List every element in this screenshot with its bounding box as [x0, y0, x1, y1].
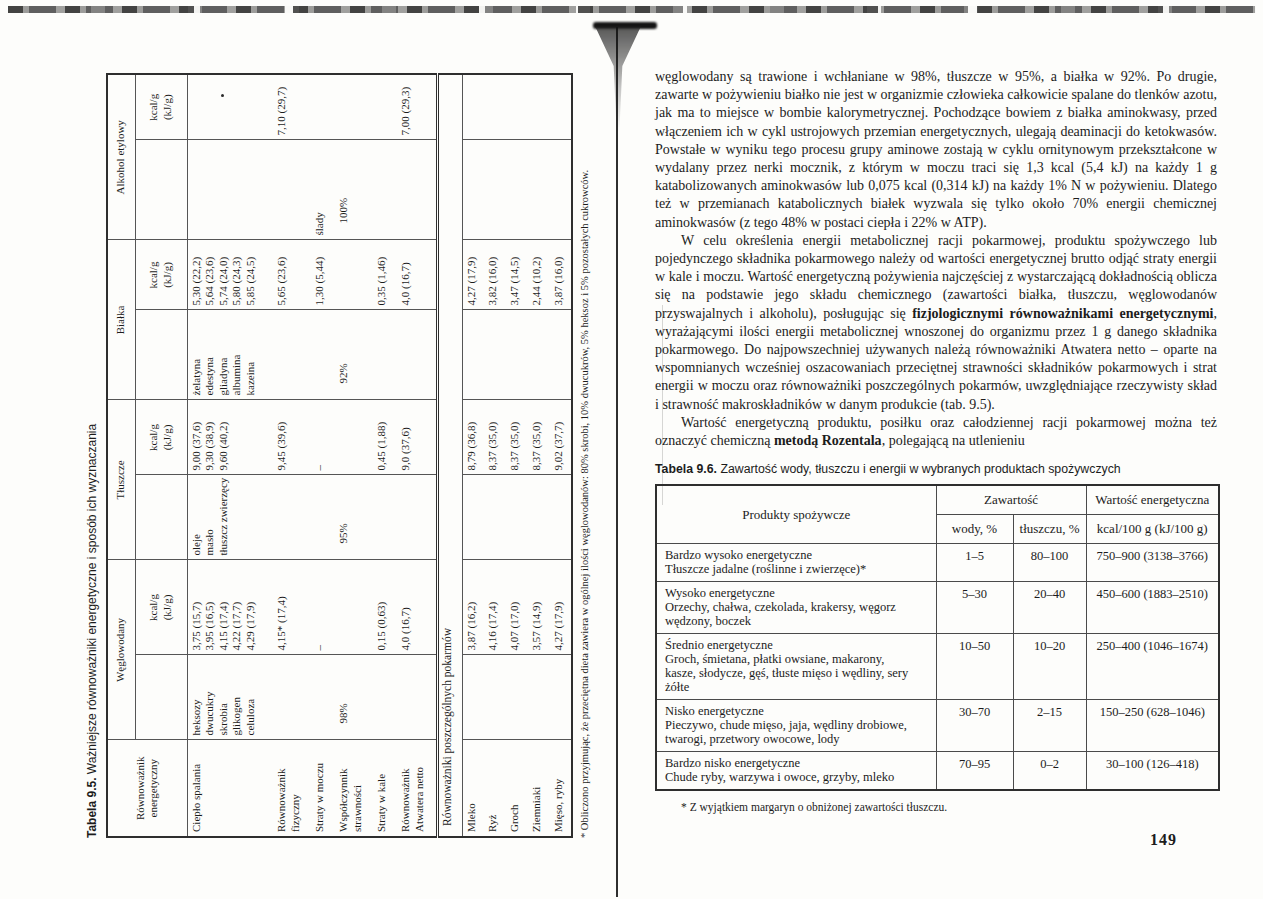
row-label: Straty w moczu — [311, 740, 335, 837]
table-cell: heksozy dwucukry skrobia glikogen celulo… — [187, 655, 273, 740]
table-cell — [484, 475, 506, 560]
fat-cell: 0–2 — [1013, 752, 1086, 791]
table-cell — [311, 655, 335, 740]
table-cell: 9,45 (39,6) — [273, 400, 311, 475]
table-cell — [397, 310, 437, 400]
table-row: Średnio energetyczne Groch, śmietana, pł… — [656, 634, 1219, 700]
table-cell: 8,37 (35,0) — [484, 400, 506, 475]
table-cell — [311, 310, 335, 400]
table-9-5-caption: Tabela 9.5. Ważniejsze równoważniki ener… — [85, 60, 100, 838]
table-cell — [550, 310, 572, 400]
table-cell: 2,44 (10,2) — [528, 240, 550, 310]
table-cell — [528, 74, 550, 140]
table-cell — [373, 475, 397, 560]
table-cell — [273, 475, 311, 560]
col-subheader-kcal: kcal/g (kJ/g) — [135, 240, 187, 310]
table-cell — [528, 475, 550, 560]
col-subheader-kcal: kcal/g (kJ/g) — [135, 560, 187, 655]
row-label: Ziemniaki — [528, 740, 550, 837]
rotated-table-block: Tabela 9.5. Ważniejsze równoważniki ener… — [85, 60, 585, 838]
product-cell: Bardzo wysoko energetyczne Tłuszcze jada… — [656, 544, 936, 582]
table-row: Mleko3,87 (16,2)8,79 (36,8)4,27 (17,9) — [462, 74, 484, 837]
table-row: Groch4,07 (17,0)8,37 (35,0)3,47 (14,5) — [506, 74, 528, 837]
table-row: Bardzo nisko energetyczne Chude ryby, wa… — [656, 752, 1219, 791]
table-9-5-footnote: * Obliczono przyjmując, że przeciętna di… — [578, 60, 591, 838]
table-cell — [187, 140, 273, 240]
table-cell — [550, 655, 572, 740]
table-cell — [335, 560, 373, 655]
table-cell: 3,87 (16,0) — [550, 240, 572, 310]
table-cell: 4,15* (17,4) — [273, 560, 311, 655]
table-cell — [187, 74, 273, 140]
table-cell: 9,00 (37,6) 9,30 (38,9) 9,60 (40,2) — [187, 400, 273, 475]
water-cell: 1–5 — [936, 544, 1013, 582]
table-row: Ryż4,16 (17,4)8,37 (35,0)3,82 (16,0) — [484, 74, 506, 837]
table-cell — [462, 655, 484, 740]
table-cell: 0,45 (1,88) — [373, 400, 397, 475]
table-cell: oleje masło tłuszcz zwierzęcy — [187, 475, 273, 560]
table-cell — [397, 140, 437, 240]
table-row: Ciepło spalaniaheksozy dwucukry skrobia … — [187, 74, 273, 837]
fat-cell: 80–100 — [1013, 544, 1086, 582]
table-cell — [373, 74, 397, 140]
table-cell: 4,0 (16,7) — [397, 240, 437, 310]
table-cell — [506, 74, 528, 140]
row-label: Ciepło spalania — [187, 740, 273, 837]
table-cell: 100% — [335, 140, 373, 240]
product-cell: Nisko energetyczne Pieczywo, chude mięso… — [656, 700, 936, 752]
table-cell — [506, 475, 528, 560]
table-cell: żelatyna edestyna gliadyna albumina kaze… — [187, 310, 273, 400]
table-cell: 4,16 (17,4) — [484, 560, 506, 655]
table-cell — [550, 74, 572, 140]
col-subheader-kcal: kcal/g (kJ/g) — [135, 400, 187, 475]
table-cell — [335, 400, 373, 475]
table-cell — [528, 655, 550, 740]
row-label: Równoważnik Atwatera netto — [397, 740, 437, 837]
table-cell — [373, 310, 397, 400]
table-cell: 3,87 (16,2) — [462, 560, 484, 655]
table-cell: 9,02 (37,7) — [550, 400, 572, 475]
table-cell — [311, 74, 335, 140]
row-label: Równoważnik fizyczny — [273, 740, 311, 837]
col-subheader-names — [135, 655, 187, 740]
row-label: Mięso, ryby — [550, 740, 572, 837]
table-cell: 8,79 (36,8) — [462, 400, 484, 475]
table-cell — [484, 140, 506, 240]
col-header-group: Alkohol etylowy — [107, 74, 135, 240]
table-row: Ziemniaki3,57 (14,9)8,37 (35,0)2,44 (10,… — [528, 74, 550, 837]
table-cell: 8,37 (35,0) — [506, 400, 528, 475]
table-cell: – — [311, 400, 335, 475]
water-cell: 70–95 — [936, 752, 1013, 791]
col-subheader-names — [135, 310, 187, 400]
table-9-5-caption-number: Tabela 9.5. — [85, 778, 99, 838]
col-subheader-names — [135, 475, 187, 560]
table-cell — [462, 140, 484, 240]
table-cell: 95% — [335, 475, 373, 560]
body-text: węglowodany są trawione i wchłaniane w 9… — [655, 0, 1217, 450]
energy-cell: 30–100 (126–418) — [1086, 752, 1219, 791]
table-cell — [506, 140, 528, 240]
col-header-group: Węglowodany — [107, 560, 135, 740]
row-label: Straty w kale — [373, 740, 397, 837]
product-cell: Średnio energetyczne Groch, śmietana, pł… — [656, 634, 936, 700]
col-subheader-kcal: kcal/g (kJ/g) — [135, 74, 187, 140]
fat-cell: 20–40 — [1013, 582, 1086, 634]
energy-cell: 750–900 (3138–3766) — [1086, 544, 1219, 582]
table-cell: 1,30 (5,44) — [311, 240, 335, 310]
col-subheader-names — [135, 140, 187, 240]
section-header-row: Równoważniki poszczególnych pokarmów — [437, 74, 462, 837]
col-header-content-group: Zawartość — [936, 485, 1086, 515]
water-cell: 10–50 — [936, 634, 1013, 700]
table-9-5: Równoważnik energetycznyWęglowodanyTłusz… — [106, 73, 573, 838]
table-cell: 4,27 (17,9) — [550, 560, 572, 655]
table-cell: 0,15 (0,63) — [373, 560, 397, 655]
table-row: Wysoko energetyczne Orzechy, chałwa, cze… — [656, 582, 1219, 634]
table-row: Równoważnik fizyczny4,15* (17,4)9,45 (39… — [273, 74, 311, 837]
table-cell: 3,82 (16,0) — [484, 240, 506, 310]
table-cell: 98% — [335, 655, 373, 740]
table-cell: 7,00 (29,3) — [397, 74, 437, 140]
table-9-5-caption-text: Ważniejsze równoważniki energetyczne i s… — [85, 424, 99, 778]
text-segment: , wyrażającymi ilości energii metabolicz… — [655, 306, 1217, 412]
table-9-6: Produkty spożywcze Zawartość Wartość ene… — [655, 484, 1220, 791]
left-page: Tabela 9.5. Ważniejsze równoważniki ener… — [85, 60, 585, 838]
table-cell — [397, 475, 437, 560]
fat-cell: 2–15 — [1013, 700, 1086, 752]
table-cell — [397, 655, 437, 740]
table-cell: – — [311, 560, 335, 655]
table-cell: 9,0 (37,6) — [397, 400, 437, 475]
table-cell — [273, 655, 311, 740]
water-cell: 30–70 — [936, 700, 1013, 752]
fat-cell: 10–20 — [1013, 634, 1086, 700]
table-cell: 4,27 (17,9) — [462, 240, 484, 310]
table-cell — [462, 475, 484, 560]
table-9-6-footnote: * Z wyjątkiem margaryn o obniżonej zawar… — [681, 801, 1217, 813]
table-9-6-caption-text: Zawartość wody, tłuszczu i energii w wyb… — [717, 462, 1121, 476]
table-cell — [373, 140, 397, 240]
table-cell: 5,30 (22,2) 5,64 (23,6) 5,74 (24,0) 5,80… — [187, 240, 273, 310]
table-cell — [550, 140, 572, 240]
table-9-6-caption: Tabela 9.6. Zawartość wody, tłuszczu i e… — [655, 462, 1217, 477]
section-header-cell: Równoważniki poszczególnych pokarmów — [437, 74, 462, 837]
table-cell: ślady — [311, 140, 335, 240]
product-cell: Bardzo nisko energetyczne Chude ryby, wa… — [656, 752, 936, 791]
row-label: Współczynnik strawności — [335, 740, 373, 837]
paragraph: Wartość energetyczną produktu, posiłku o… — [655, 414, 1217, 450]
table-cell — [528, 140, 550, 240]
table-cell: 4,0 (16,7) — [397, 560, 437, 655]
table-cell — [528, 310, 550, 400]
paragraph: W celu określenia energii metabolicznej … — [655, 232, 1217, 414]
water-cell: 5–30 — [936, 582, 1013, 634]
energy-cell: 250–400 (1046–1674) — [1086, 634, 1219, 700]
table-cell: 5,65 (23,6) — [273, 240, 311, 310]
table-cell — [506, 655, 528, 740]
table-cell: 7,10 (29,7) — [273, 74, 311, 140]
table-cell: 0,35 (1,46) — [373, 240, 397, 310]
table-cell — [550, 475, 572, 560]
table-cell: 92% — [335, 310, 373, 400]
col-header-fat: tłuszczu, % — [1013, 515, 1086, 544]
table-row: Równoważnik Atwatera netto4,0 (16,7)9,0 … — [397, 74, 437, 837]
paragraph: węglowodany są trawione i wchłaniane w 9… — [655, 68, 1217, 232]
table-cell: 8,37 (35,0) — [528, 400, 550, 475]
col-header-group: Tłuszcze — [107, 400, 135, 560]
table-cell — [311, 475, 335, 560]
table-cell: 4,07 (17,0) — [506, 560, 528, 655]
table-cell: 3,47 (14,5) — [506, 240, 528, 310]
table-9-6-caption-number: Tabela 9.6. — [655, 462, 717, 476]
energy-cell: 450–600 (1883–2510) — [1086, 582, 1219, 634]
table-cell — [273, 140, 311, 240]
right-page: węglowodany są trawione i wchłaniane w 9… — [655, 0, 1217, 849]
row-label: Mleko — [462, 740, 484, 837]
table-cell — [335, 74, 373, 140]
col-header-equivalent: Równoważnik energetyczny — [107, 740, 187, 837]
bold-phrase: metodą Rozentala — [774, 433, 882, 448]
book-spine-line — [616, 27, 618, 897]
row-label: Ryż — [484, 740, 506, 837]
table-cell — [462, 74, 484, 140]
table-cell — [484, 655, 506, 740]
text-segment: , polegającą na utlenieniu — [882, 433, 1025, 448]
table-cell — [273, 310, 311, 400]
table-row: Nisko energetyczne Pieczywo, chude mięso… — [656, 700, 1219, 752]
table-row: Straty w kale0,15 (0,63)0,45 (1,88)0,35 … — [373, 74, 397, 837]
col-header-products: Produkty spożywcze — [656, 485, 936, 544]
table-row: Mięso, ryby4,27 (17,9)9,02 (37,7)3,87 (1… — [550, 74, 572, 837]
table-cell: 3,75 (15,7) 3,95 (16,5) 4,15 (17,4) 4,22… — [187, 560, 273, 655]
table-cell — [484, 74, 506, 140]
table-cell — [462, 310, 484, 400]
col-header-water: wody, % — [936, 515, 1013, 544]
table-cell — [484, 310, 506, 400]
table-row: Straty w moczu––1,30 (5,44)ślady — [311, 74, 335, 837]
energy-cell: 150–250 (628–1046) — [1086, 700, 1219, 752]
col-header-group: Białka — [107, 240, 135, 400]
bold-phrase: fizjologicznymi równoważnikami energetyc… — [912, 306, 1213, 321]
table-row: Współczynnik strawności98%95%92%100% — [335, 74, 373, 837]
page-number: 149 — [655, 831, 1217, 849]
book-spine-shadow-fade — [582, 26, 654, 131]
col-header-energy-group: Wartość energetyczna — [1086, 485, 1219, 515]
table-cell — [373, 655, 397, 740]
table-row: Bardzo wysoko energetyczne Tłuszcze jada… — [656, 544, 1219, 582]
text-segment: węglowodany są trawione i wchłaniane w 9… — [655, 69, 1217, 230]
table-cell — [335, 240, 373, 310]
table-header-row: Produkty spożywcze Zawartość Wartość ene… — [656, 485, 1219, 515]
row-label: Groch — [506, 740, 528, 837]
product-cell: Wysoko energetyczne Orzechy, chałwa, cze… — [656, 582, 936, 634]
table-cell: 3,57 (14,9) — [528, 560, 550, 655]
table-header-row: Równoważnik energetycznyWęglowodanyTłusz… — [107, 74, 135, 837]
table-subheader-row: kcal/g (kJ/g)kcal/g (kJ/g)kcal/g (kJ/g)k… — [135, 74, 187, 837]
table-cell — [506, 310, 528, 400]
col-header-kcal: kcal/100 g (kJ/100 g) — [1086, 515, 1219, 544]
